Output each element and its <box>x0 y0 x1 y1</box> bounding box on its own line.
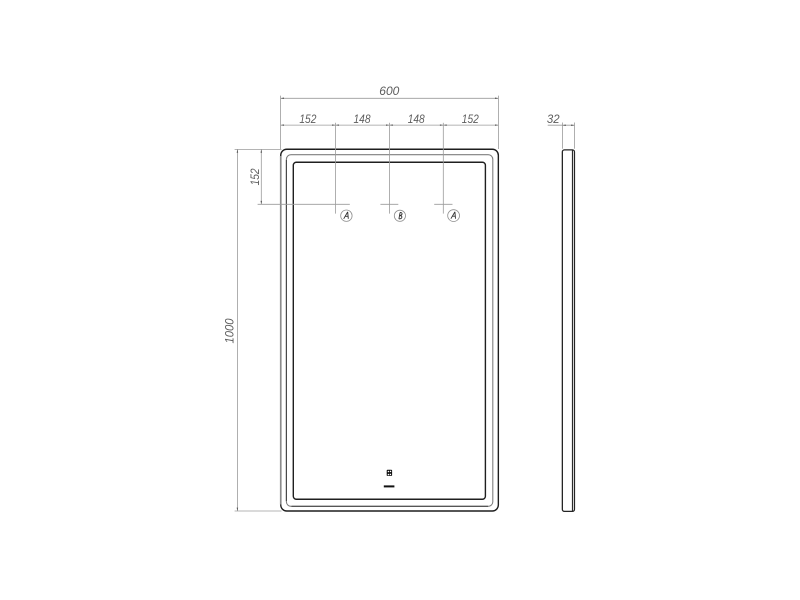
svg-text:152: 152 <box>299 112 316 126</box>
svg-text:148: 148 <box>354 112 371 126</box>
svg-text:1000: 1000 <box>223 318 237 343</box>
svg-text:148: 148 <box>408 112 425 126</box>
svg-text:32: 32 <box>547 112 560 126</box>
svg-text:152: 152 <box>462 112 479 126</box>
svg-text:152: 152 <box>248 168 262 185</box>
svg-text:600: 600 <box>379 84 399 98</box>
